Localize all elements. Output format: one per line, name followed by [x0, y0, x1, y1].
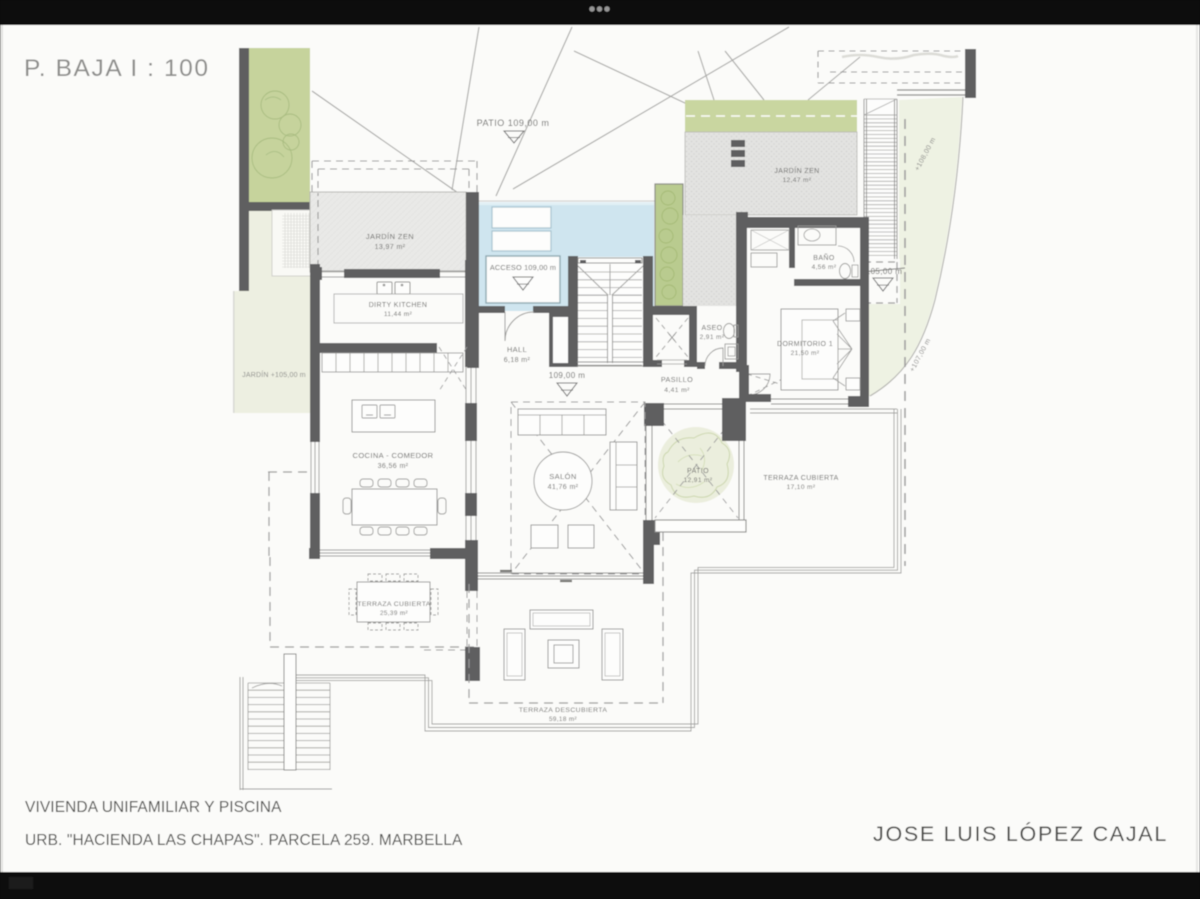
svg-text:TERRAZA CUBIERTA: TERRAZA CUBIERTA	[357, 601, 430, 608]
svg-text:SALÓN: SALÓN	[549, 472, 576, 481]
svg-text:TERRAZA DESCUBIERTA: TERRAZA DESCUBIERTA	[519, 707, 608, 714]
svg-text:JARDÍN ZEN: JARDÍN ZEN	[774, 166, 819, 175]
svg-text:JOSE LUIS LÓPEZ CAJAL: JOSE LUIS LÓPEZ CAJAL	[873, 821, 1168, 846]
svg-text:4,41 m²: 4,41 m²	[664, 387, 690, 394]
svg-text:TERRAZA CUBIERTA: TERRAZA CUBIERTA	[763, 475, 838, 482]
svg-text:URB. "HACIENDA LAS CHAPAS". PA: URB. "HACIENDA LAS CHAPAS". PARCELA 259.…	[25, 832, 463, 849]
svg-text:HALL: HALL	[507, 345, 527, 354]
svg-text:12,91 m²: 12,91 m²	[684, 477, 713, 484]
svg-text:JARDÍN +105,00 m: JARDÍN +105,00 m	[242, 370, 306, 379]
svg-text:DORMITORIO 1: DORMITORIO 1	[777, 341, 833, 348]
svg-text:4,56 m²: 4,56 m²	[812, 264, 837, 271]
svg-text:2,91 m²: 2,91 m²	[700, 334, 725, 341]
svg-text:VIVIENDA UNIFAMILIAR Y PISCINA: VIVIENDA UNIFAMILIAR Y PISCINA	[25, 799, 282, 816]
svg-text:36,56 m²: 36,56 m²	[378, 463, 409, 470]
svg-text:JARDÍN ZEN: JARDÍN ZEN	[366, 232, 414, 241]
svg-text:109,00 m: 109,00 m	[549, 371, 586, 380]
svg-text:6,18 m²: 6,18 m²	[504, 357, 531, 364]
svg-text:PATIO 109,00 m: PATIO 109,00 m	[477, 118, 550, 128]
svg-text:PASILLO: PASILLO	[661, 375, 693, 384]
svg-text:17,10 m²: 17,10 m²	[787, 484, 816, 491]
svg-text:PATIO: PATIO	[687, 468, 709, 475]
svg-text:COCINA - COMEDOR: COCINA - COMEDOR	[353, 451, 434, 460]
svg-text:12,47 m²: 12,47 m²	[783, 177, 812, 184]
svg-text:ASEO: ASEO	[701, 325, 722, 332]
svg-text:25,39 m²: 25,39 m²	[380, 610, 408, 617]
svg-text:11,44 m²: 11,44 m²	[384, 311, 413, 318]
svg-text:ACCESO 109,00 m: ACCESO 109,00 m	[490, 263, 556, 272]
svg-text:13,97 m²: 13,97 m²	[375, 244, 406, 251]
svg-text:59,18 m²: 59,18 m²	[549, 716, 577, 723]
svg-text:P. BAJA I : 100: P. BAJA I : 100	[24, 55, 210, 82]
svg-text:BAÑO: BAÑO	[813, 253, 835, 262]
svg-text:21,50 m²: 21,50 m²	[791, 350, 820, 357]
svg-text:41,76 m²: 41,76 m²	[548, 484, 579, 491]
svg-text:DIRTY KITCHEN: DIRTY KITCHEN	[369, 302, 428, 309]
